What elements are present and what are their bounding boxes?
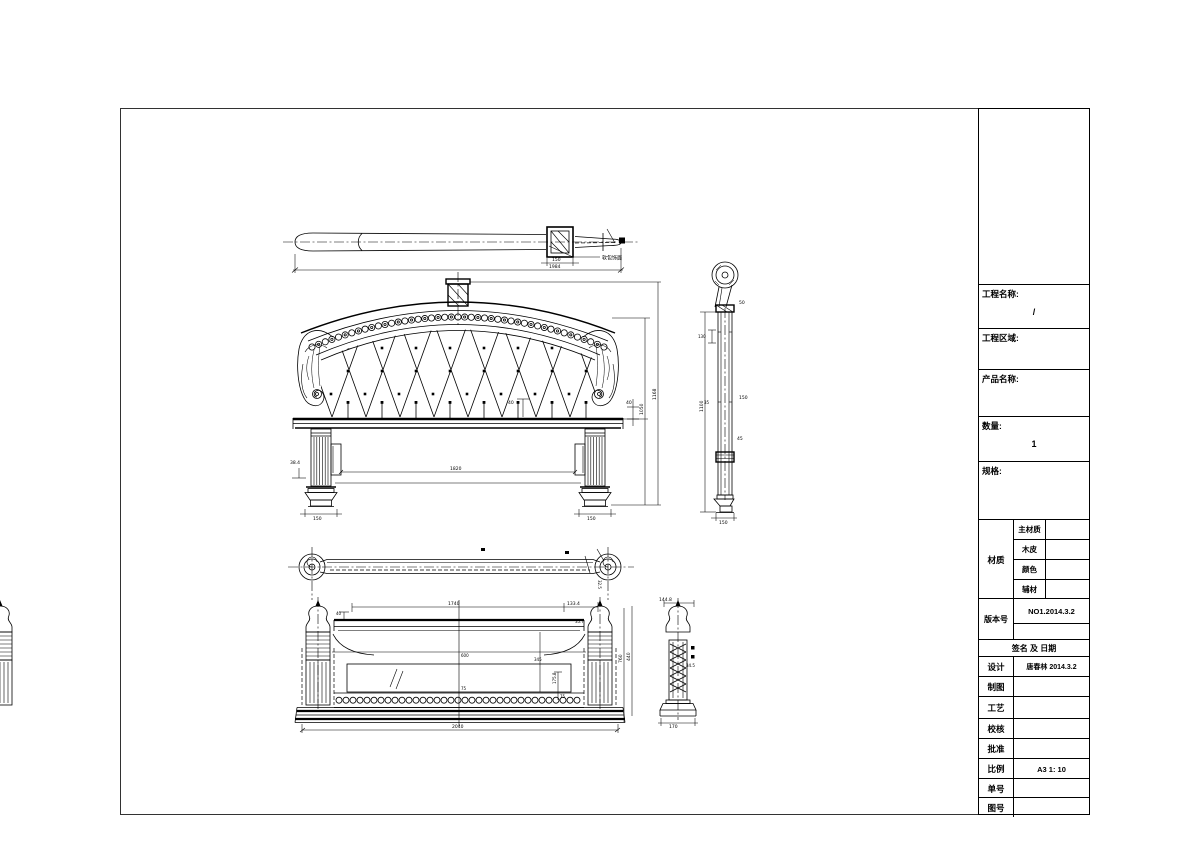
dim-label: 75 (560, 694, 566, 699)
plan-note: 软包饰面 (602, 255, 622, 262)
dim-label: 1050 (639, 403, 645, 415)
material-row-value (1046, 520, 1089, 540)
material-row-label: 辅材 (1014, 580, 1046, 599)
dim-label: 2040 (452, 724, 464, 730)
sign-row-draft: 制图 (979, 676, 1089, 696)
dim-label: 150 (552, 257, 561, 263)
project-area-label: 工程区域: (982, 332, 1019, 344)
dim-label: 760 (618, 654, 624, 663)
dim-label: 144.8 (659, 597, 672, 603)
sign-row-label: 工艺 (979, 697, 1014, 719)
view-headboard-plan: 软包饰面 150 1984 (283, 227, 640, 273)
sign-row-label: 制图 (979, 677, 1014, 697)
version-section: 版本号 NO1.2014.3.2 (979, 598, 1089, 639)
spec-row: 规格: (979, 461, 1089, 519)
material-row-label: 颜色 (1014, 560, 1046, 580)
dim-label: 150 (739, 395, 748, 401)
quantity-label: 数量: (982, 420, 1002, 432)
scroll-volute-left (298, 331, 333, 406)
view-footboard-front: 600 75 1740 133.4 40 35.7 345 175.8 75 7… (0, 597, 625, 733)
sign-row-craft: 工艺 (979, 696, 1089, 718)
dim-label: 1984 (549, 264, 561, 270)
dim-label: 175.8 (552, 672, 557, 684)
dim-label: 1168 (652, 388, 658, 400)
project-name-label: 工程名称: (982, 288, 1019, 300)
sign-row-label: 单号 (979, 779, 1014, 798)
fluted-leg-right (575, 429, 611, 507)
sign-row-value: A3 1: 10 (1014, 759, 1089, 779)
sign-row-value (1014, 779, 1089, 798)
material-row-label: 木皮 (1014, 540, 1046, 560)
dim-label: 35 (704, 400, 710, 405)
scroll-volute-right (583, 331, 618, 406)
view-headboard-side: 1100 130 50 150 45 35 150 (698, 262, 748, 526)
sign-row-value (1014, 739, 1089, 759)
quantity-row: 数量: 1 (979, 416, 1089, 461)
title-block: 工程名称: / 工程区域: 产品名称: 数量: 1 规格: 材质 主材质 木皮 … (978, 108, 1090, 815)
title-block-empty-box (979, 109, 1089, 284)
material-row-label: 主材质 (1014, 520, 1046, 540)
project-area-row: 工程区域: (979, 328, 1089, 369)
dim-label: 440 (626, 652, 632, 661)
sign-row-design: 设计 唐春林 2014.3.2 (979, 656, 1089, 676)
signature-header: 签名 及 日期 (979, 640, 1089, 656)
view-footboard-plan: 32.5 (288, 547, 634, 600)
sign-row-value: 唐春林 2014.3.2 (1014, 657, 1089, 677)
view-footboard-side: 144.8 440 34.5 170 (626, 597, 698, 730)
project-name-row: 工程名称: / (979, 284, 1089, 328)
version-value: NO1.2014.3.2 (1014, 599, 1089, 624)
dim-label: 150 (313, 516, 322, 522)
fluted-leg-left (305, 429, 341, 507)
view-headboard-front: 40 1820 (184, 272, 718, 522)
dim-label: 1740 (448, 601, 460, 607)
sign-row-order: 单号 (979, 778, 1089, 797)
version-empty (1014, 624, 1089, 640)
sign-row-drawingno: 图号 (979, 797, 1089, 816)
product-name-row: 产品名称: (979, 369, 1089, 416)
sign-row-label: 校核 (979, 719, 1014, 739)
sign-row-value (1014, 719, 1089, 739)
sign-row-scale: 比例 A3 1: 10 (979, 758, 1089, 778)
sign-row-label: 比例 (979, 759, 1014, 779)
sign-row-value (1014, 798, 1089, 817)
sign-row-label: 批准 (979, 739, 1014, 759)
material-row-value (1046, 560, 1089, 580)
dim-label: 170 (669, 724, 678, 730)
project-name-value: / (979, 307, 1089, 317)
dim-label: 600 (461, 653, 469, 658)
dim-label: 35.7 (575, 619, 584, 624)
dim-label: 34.5 (686, 663, 695, 668)
tufting-grid (184, 289, 718, 417)
sign-row-approve: 批准 (979, 738, 1089, 758)
material-row-value (1046, 580, 1089, 599)
sign-row-label: 设计 (979, 657, 1014, 677)
dim-label: 150 (719, 520, 728, 526)
sign-row-check: 校核 (979, 718, 1089, 738)
rope-carving-band (336, 697, 580, 703)
spec-label: 规格: (982, 465, 1002, 477)
dim-label: 133.4 (567, 601, 580, 607)
dim-label: 45 (737, 436, 743, 442)
dim-label: 150 (587, 516, 596, 522)
cad-sheet: 软包饰面 150 1984 (0, 0, 1191, 842)
material-label: 材质 (979, 520, 1014, 599)
sign-row-label: 图号 (979, 798, 1014, 817)
dim-label: 38.4 (290, 460, 300, 466)
version-label: 版本号 (979, 599, 1014, 640)
dim-label: 32.5 (597, 580, 602, 589)
signature-header-row: 签名 及 日期 (979, 639, 1089, 656)
dim-label: 75 (461, 686, 467, 691)
dim-label: 130 (698, 334, 706, 339)
dim-label: 345 (534, 657, 542, 662)
material-section: 材质 主材质 木皮 颜色 辅材 (979, 519, 1089, 598)
sign-row-value (1014, 697, 1089, 719)
dim-label: 50 (739, 300, 745, 306)
sign-row-value (1014, 677, 1089, 697)
quantity-value: 1 (979, 439, 1089, 449)
material-row-value (1046, 540, 1089, 560)
dim-label: 1820 (450, 466, 462, 472)
dim-label: 40 (626, 400, 632, 406)
dim-label: 40 (508, 400, 514, 406)
product-name-label: 产品名称: (982, 373, 1019, 385)
